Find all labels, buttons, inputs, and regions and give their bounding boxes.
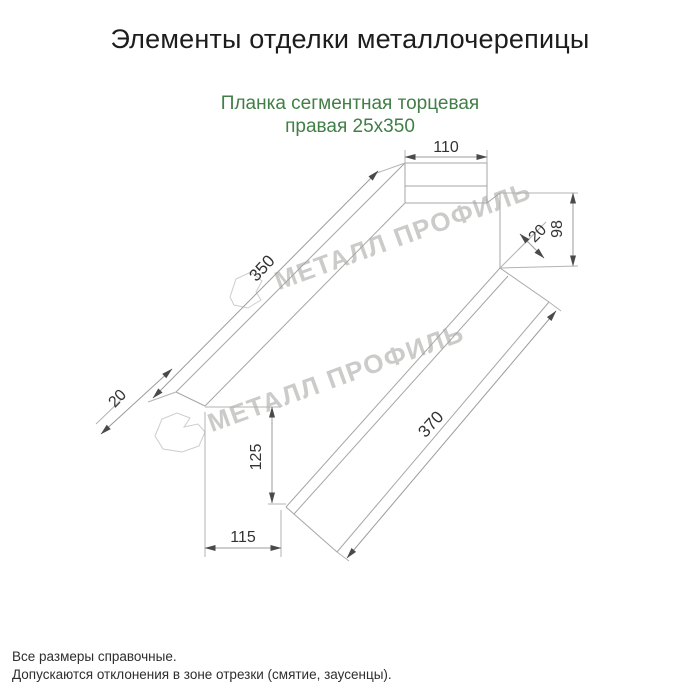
dim-label-125: 125: [248, 444, 265, 471]
dim-label-20-left: 20: [105, 386, 130, 411]
technical-drawing: МЕТАЛЛ ПРОФИЛЬ МЕТАЛЛ ПРОФИЛЬ 110: [0, 0, 700, 700]
watermark-top: МЕТАЛЛ ПРОФИЛЬ: [271, 175, 536, 296]
break-mark-lower: [155, 413, 205, 452]
dimension-20-right: 20: [500, 221, 550, 268]
footer-note-1: Все размеры справочные.: [12, 648, 392, 666]
dim-label-110: 110: [433, 139, 459, 156]
footer-note-2: Допускаются отклонения в зоне отрезки (с…: [12, 666, 392, 684]
dim-label-115: 115: [230, 529, 256, 546]
dim-label-20-right: 20: [526, 221, 551, 246]
dimension-110: 110: [405, 139, 487, 163]
dim-label-370: 370: [414, 407, 447, 441]
footer-notes: Все размеры справочные. Допускаются откл…: [12, 648, 392, 684]
dim-label-98: 98: [549, 220, 566, 238]
